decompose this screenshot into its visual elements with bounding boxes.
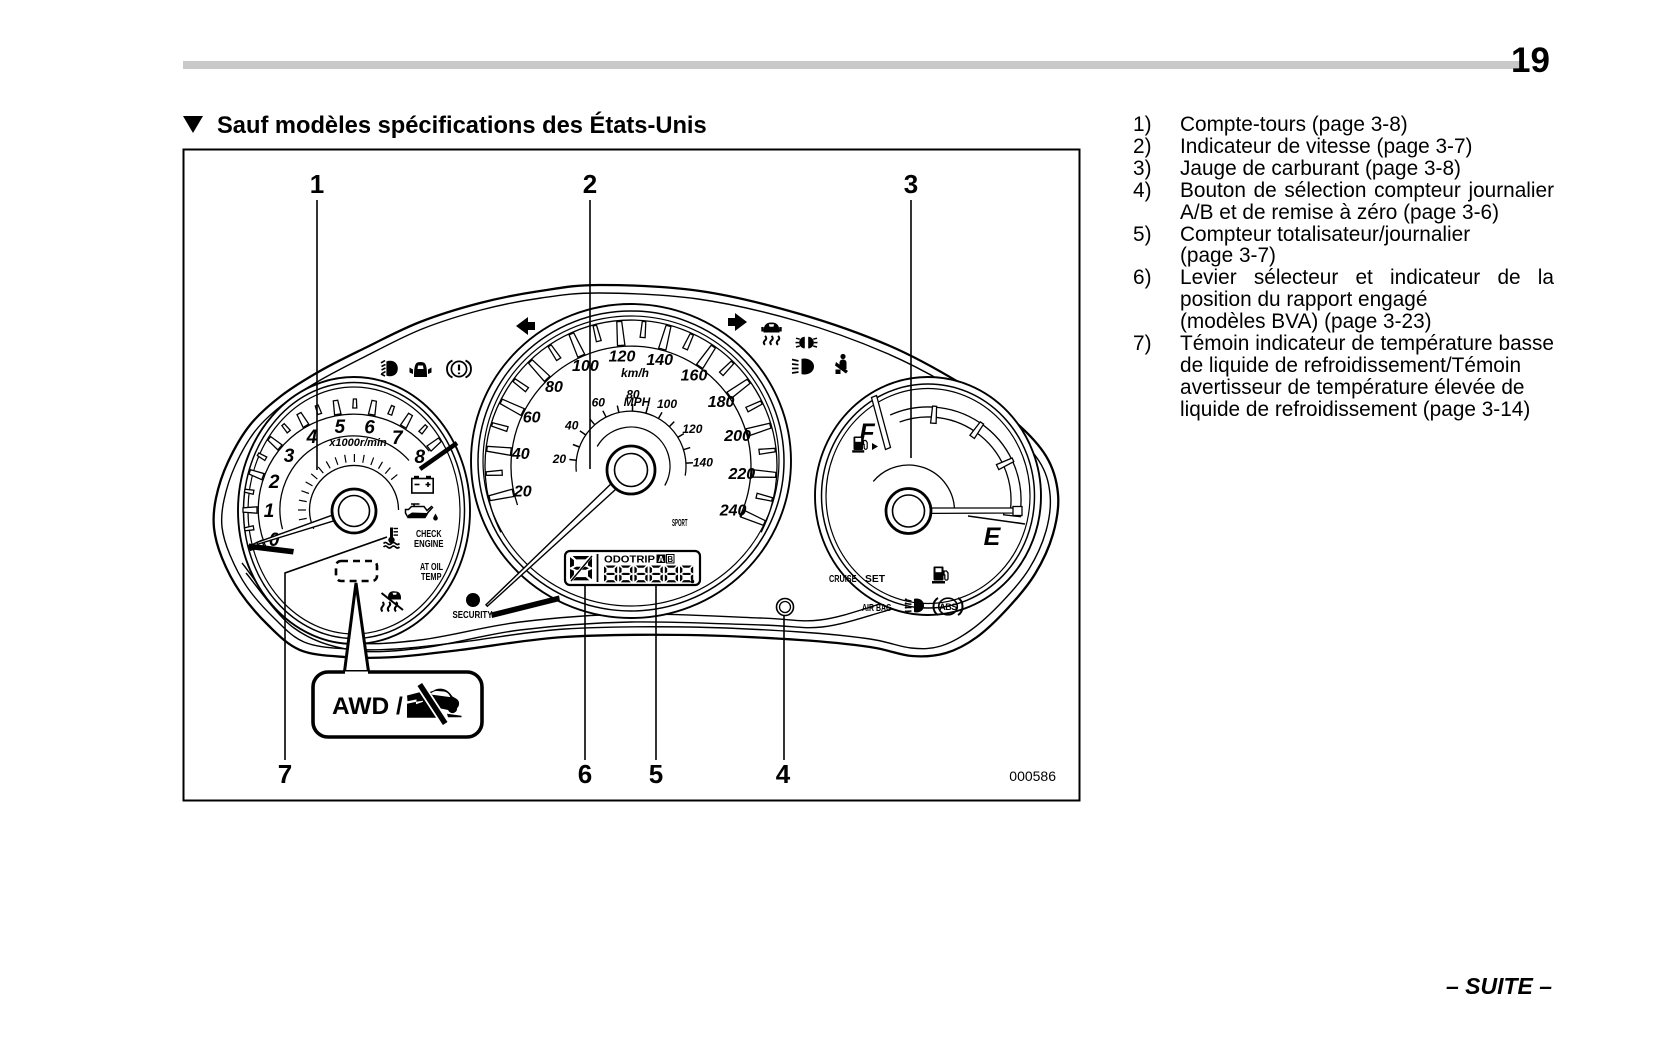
svg-text:7: 7 bbox=[392, 428, 404, 449]
svg-text:3: 3 bbox=[284, 446, 295, 467]
svg-text:100: 100 bbox=[572, 358, 599, 375]
svg-text:4: 4 bbox=[776, 759, 791, 789]
svg-text:20: 20 bbox=[513, 484, 532, 501]
svg-text:80: 80 bbox=[545, 379, 563, 396]
svg-text:CRUISE: CRUISE bbox=[829, 574, 857, 585]
svg-text:140: 140 bbox=[693, 456, 713, 470]
svg-text:x1000r/min: x1000r/min bbox=[328, 437, 387, 449]
svg-text:2: 2 bbox=[268, 472, 280, 493]
svg-text:20: 20 bbox=[552, 452, 567, 466]
svg-text:160: 160 bbox=[681, 368, 708, 385]
svg-text:60: 60 bbox=[592, 395, 606, 409]
svg-text:SPORT: SPORT bbox=[672, 518, 688, 529]
svg-text:60: 60 bbox=[523, 410, 541, 427]
svg-text:2: 2 bbox=[583, 169, 597, 199]
svg-text:4: 4 bbox=[306, 427, 318, 448]
svg-text:6: 6 bbox=[578, 759, 592, 789]
svg-text:ENGINE: ENGINE bbox=[414, 539, 444, 550]
svg-text:SECURITY: SECURITY bbox=[453, 610, 493, 621]
svg-text:220: 220 bbox=[727, 466, 755, 483]
svg-text:5: 5 bbox=[649, 759, 663, 789]
svg-text:140: 140 bbox=[646, 352, 673, 369]
svg-text:5: 5 bbox=[335, 417, 346, 438]
svg-text:100: 100 bbox=[657, 397, 677, 411]
svg-text:200: 200 bbox=[723, 428, 751, 445]
svg-text:000586: 000586 bbox=[1009, 768, 1056, 784]
svg-text:1: 1 bbox=[264, 501, 275, 522]
svg-text:AIR BAG: AIR BAG bbox=[862, 603, 892, 614]
svg-text:A: A bbox=[658, 555, 664, 564]
svg-text:1: 1 bbox=[310, 169, 324, 199]
svg-text:ABS: ABS bbox=[939, 602, 957, 612]
svg-text:AWD /: AWD / bbox=[332, 693, 403, 720]
svg-text:120: 120 bbox=[682, 422, 702, 436]
svg-text:7: 7 bbox=[278, 759, 292, 789]
svg-text:TEMP: TEMP bbox=[421, 572, 442, 583]
svg-text:E: E bbox=[984, 523, 1002, 551]
svg-text:40: 40 bbox=[564, 419, 579, 433]
svg-text:6: 6 bbox=[364, 417, 375, 438]
svg-text:120: 120 bbox=[609, 348, 636, 365]
svg-text:MPH: MPH bbox=[624, 395, 651, 409]
svg-text:40: 40 bbox=[511, 446, 530, 463]
svg-text:SET: SET bbox=[865, 574, 885, 585]
svg-text:3: 3 bbox=[904, 169, 918, 199]
svg-text:240: 240 bbox=[719, 503, 747, 520]
svg-text:km/h: km/h bbox=[621, 366, 649, 380]
svg-text:180: 180 bbox=[708, 394, 735, 411]
svg-text:ODOTRIP: ODOTRIP bbox=[604, 554, 655, 566]
svg-text:B: B bbox=[667, 555, 673, 564]
